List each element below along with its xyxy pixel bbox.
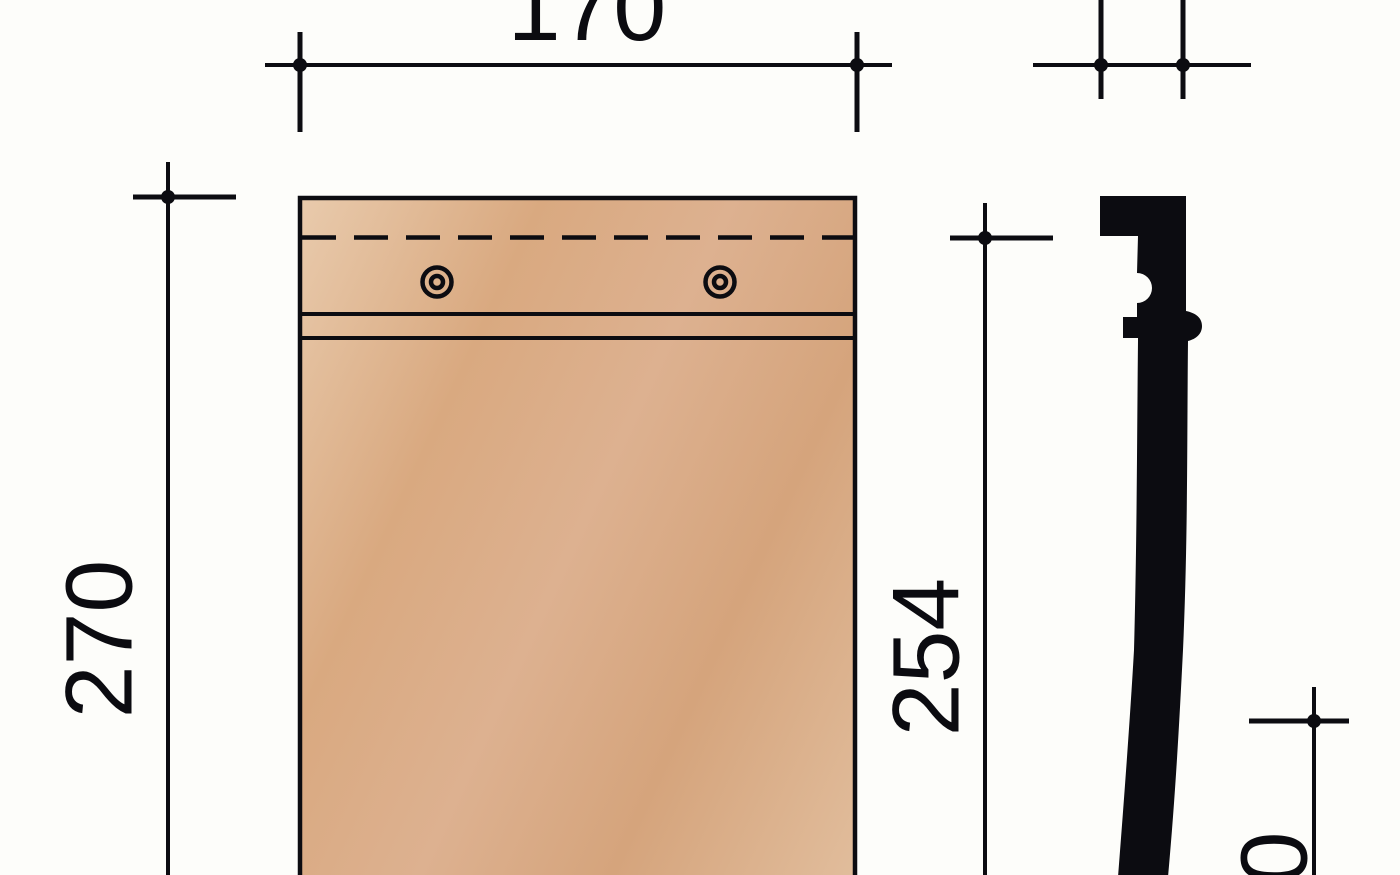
dim-front-height: 270: [46, 162, 236, 875]
nail-hole-right-inner-icon: [714, 276, 726, 288]
dim-endpoint-dot: [850, 58, 864, 72]
tile-side-profile: [1100, 196, 1202, 875]
nail-hole-left-inner-icon: [431, 276, 443, 288]
nail-hole-left-outer-icon: [423, 268, 452, 297]
dim-side-height: 254: [873, 203, 1053, 875]
technical-drawing-canvas: 170 270 254 0: [0, 0, 1400, 875]
nail-hole-right-outer-icon: [706, 268, 735, 297]
dim-label-width: 170: [508, 0, 667, 61]
front-view: [300, 198, 855, 875]
dim-endpoint-dot: [161, 190, 175, 204]
dim-label-height: 270: [46, 560, 152, 719]
side-profile-view: [1100, 196, 1202, 875]
tile-outline: [300, 198, 855, 875]
dim-profile-head-width: [1033, 0, 1251, 99]
dim-endpoint-dot: [1094, 58, 1108, 72]
dim-endpoint-dot: [1307, 714, 1321, 728]
dim-endpoint-dot: [978, 231, 992, 245]
dim-endpoint-dot: [293, 58, 307, 72]
dim-front-width: 170: [265, 0, 892, 132]
dim-label-bottom-right-partial: 0: [1221, 832, 1327, 875]
dim-bottom-right: 0: [1221, 687, 1349, 875]
dim-endpoint-dot: [1176, 58, 1190, 72]
drawing-linework: 170 270 254 0: [0, 0, 1400, 875]
dim-label-side-height: 254: [873, 578, 979, 737]
